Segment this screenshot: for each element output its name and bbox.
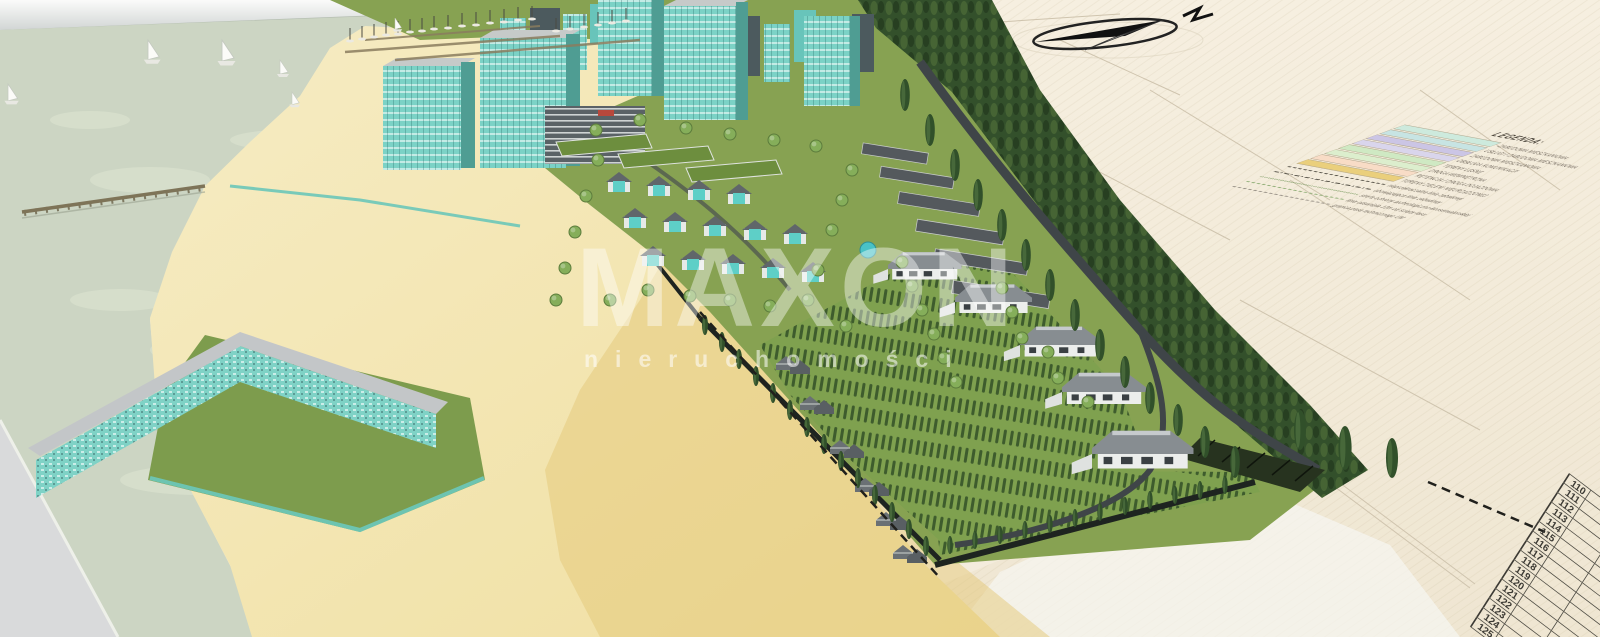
tower — [383, 58, 475, 170]
development-render: MAXON nieruchomości LEGENDA: ZABUDOWA MI… — [0, 0, 1600, 637]
render-scene — [0, 0, 1600, 637]
tower — [804, 16, 860, 106]
tower — [664, 0, 748, 120]
tower — [598, 0, 664, 96]
pool — [860, 242, 876, 258]
